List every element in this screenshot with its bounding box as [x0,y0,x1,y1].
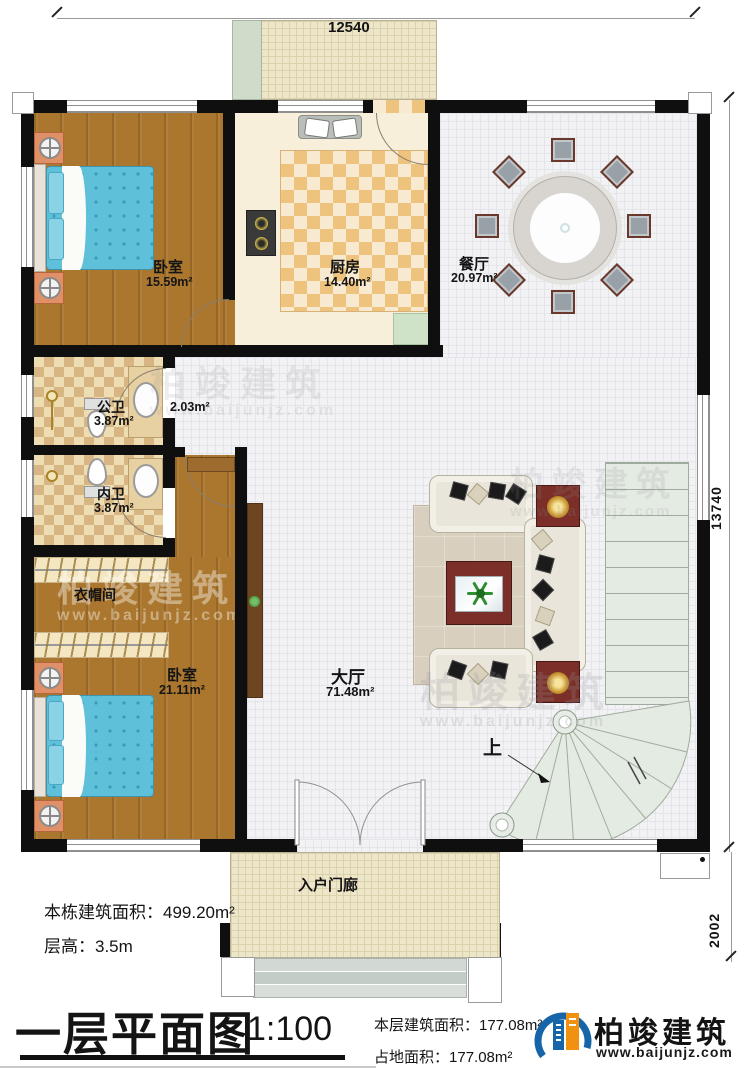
lamp-icon [39,137,61,159]
towel-ring-icon [46,470,58,482]
footprint-label: 占地面积： [374,1049,449,1066]
stairs-straight-flight [605,462,689,705]
corridor-area: 2.03m² [170,400,210,414]
dimension-top: 12540 [328,19,370,36]
room-area-hall: 71.48m² [326,684,374,699]
window [21,375,34,417]
wall [235,447,247,839]
kitchen-mat [393,313,429,345]
dining-chair [627,214,651,238]
dining-table-center [560,223,570,233]
note-floor-height-value: 3.5m [95,937,133,956]
porch-column-base [468,957,502,1003]
cabinet-plant-icon [249,596,260,607]
floor-area-label: 本层建筑面积： [374,1017,479,1034]
coffee-table [446,561,512,625]
corner-dot [700,857,705,862]
stairs-up-label: 上 [483,733,502,760]
plant-icon [467,581,493,607]
window [523,839,657,852]
side-table [536,485,580,527]
lamp-icon [39,667,61,689]
gold-medallion-icon [547,496,569,518]
titleblock-footprint: 占地面积：177.08m² [374,1046,512,1067]
window [21,690,34,790]
kitchen-sink [298,115,362,139]
sink-bowl [332,117,358,138]
porch-column-base [221,957,255,997]
nightstand [34,272,64,304]
bed-pillow [48,701,64,741]
brand-logo-icon [531,1004,593,1068]
towel-rail [51,402,53,430]
wall [163,357,175,368]
window [278,100,363,113]
corner-marker [12,92,34,114]
dimension-right: 13740 [708,450,724,530]
dimension-line-right-lower [731,852,732,962]
wall [21,345,443,357]
note-building-area-label: 本栋建筑面积： [44,903,163,922]
dimension-tick [51,6,62,17]
dimension-tick [689,6,700,17]
plan-scale: 1:100 [247,1010,332,1049]
nightstand [34,662,64,694]
wall [223,113,235,300]
entry-double-door [280,770,440,852]
stove [246,210,276,256]
dining-chair [551,138,575,162]
title-underline [20,1055,345,1060]
room-area-bedroom1: 15.59m² [146,275,193,289]
wall [163,447,185,457]
wardrobe [34,632,169,658]
bed-pillow [48,172,64,214]
floor-plan: 12540 [0,0,750,1076]
wall [21,445,163,455]
room-label-cloakroom: 衣帽间 [74,585,116,605]
burner [255,237,268,250]
title-underline-2 [0,1066,376,1068]
titleblock-floor-area: 本层建筑面积：177.08m² [374,1014,542,1035]
sink-bowl [304,117,330,138]
room-area-kitchen: 14.40m² [324,275,371,289]
towel-ring-icon [46,390,58,402]
note-building-area: 本栋建筑面积：499.20m² [44,898,235,923]
suite-door-leaf [187,457,235,472]
room-area-bath1: 3.87m² [94,414,134,428]
room-area-bedroom2: 21.11m² [159,683,205,697]
stairs-curved-flight [480,685,705,850]
note-floor-height: 层高：3.5m [44,932,133,957]
wall [428,113,440,357]
brand-website: www.baijunjz.com [596,1044,733,1060]
room-area-dining: 20.97m² [451,271,498,285]
bed-headboard [34,697,46,797]
room-label-bedroom1: 卧室 [153,256,183,277]
entrance-porch [230,852,500,958]
note-building-area-value: 499.20m² [163,903,235,922]
note-floor-height-label: 层高： [44,937,95,956]
burner [255,217,268,230]
window [527,100,655,113]
lamp-icon [39,805,61,827]
footprint-value: 177.08m² [449,1049,512,1066]
plant-center [476,589,485,598]
wall [21,545,175,557]
bed-pillow [48,745,64,785]
window [21,167,34,267]
porch-steps [253,958,467,998]
room-label-porch: 入户门廊 [298,874,358,895]
window [21,460,34,517]
dimension-bottom-right: 2002 [706,888,722,948]
dining-chair [551,290,575,314]
window [67,839,200,852]
nightstand [34,800,64,832]
dining-chair [475,214,499,238]
room-label-kitchen: 厨房 [330,256,360,277]
corner-marker [688,92,712,114]
cushion [490,661,509,680]
lamp-icon [39,277,61,299]
bed-sheet [62,695,86,797]
cushion [488,482,507,501]
nightstand [34,132,64,164]
bed-pillow [48,218,64,260]
room-label-bedroom2: 卧室 [167,664,197,685]
porch-door-opening [373,100,425,113]
room-area-bath2: 3.87m² [94,501,134,515]
wardrobe [34,557,169,583]
dimension-line-right [729,100,730,852]
window [67,100,197,113]
bed-headboard [34,164,46,272]
dimension-line-top [57,18,695,19]
bed-sheet [62,166,86,270]
rear-porch-step [232,20,262,100]
